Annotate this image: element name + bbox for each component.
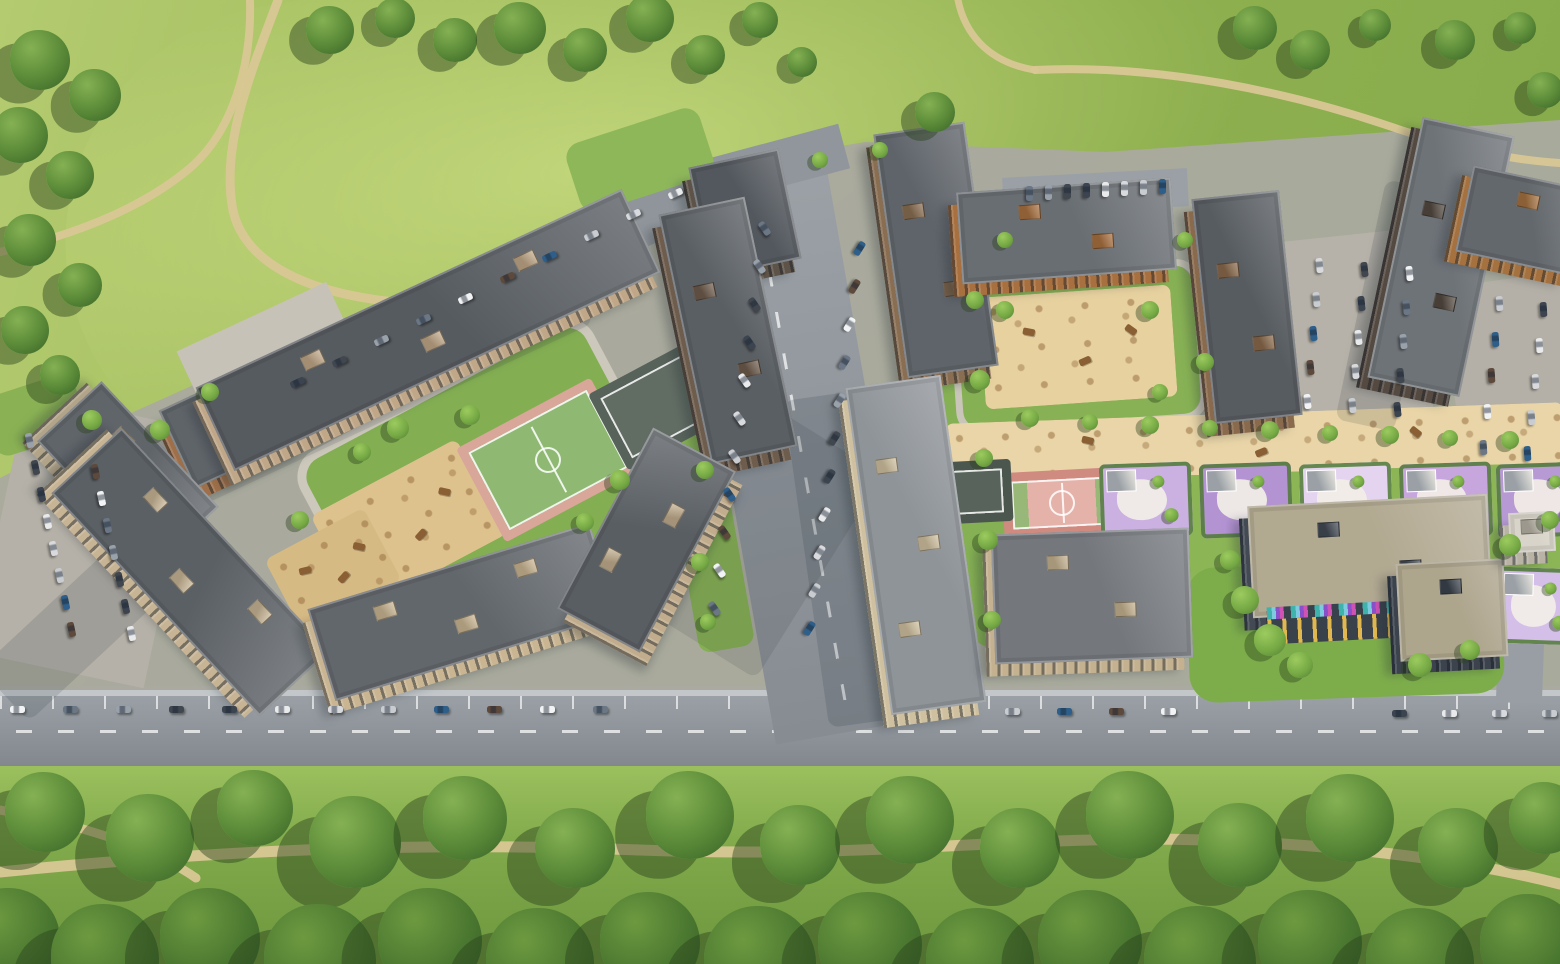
street-tree <box>201 383 219 401</box>
slope-tree <box>106 794 194 882</box>
plot-tree <box>1165 508 1179 522</box>
play-equipment <box>413 528 426 542</box>
car <box>116 706 131 713</box>
slope-tree <box>646 771 734 859</box>
slope-tree <box>217 770 293 846</box>
car <box>487 706 502 713</box>
rooftop-structure <box>598 546 622 572</box>
car <box>10 706 25 713</box>
slope-tree <box>760 805 840 885</box>
rooftop-structure <box>902 202 926 220</box>
street-tree <box>1231 586 1259 614</box>
street-tree <box>1254 624 1286 656</box>
car <box>1399 334 1408 350</box>
rooftop-structure <box>453 613 478 634</box>
meadow-tree <box>46 151 94 199</box>
rooftop-structure <box>898 620 922 638</box>
car <box>1005 708 1020 715</box>
rooftop-structure <box>1432 293 1457 312</box>
meadow-tree <box>915 92 955 132</box>
meadow-tree <box>787 47 817 77</box>
play-equipment <box>437 487 450 496</box>
rooftop-structure <box>1520 519 1543 535</box>
meadow-tree <box>375 0 415 38</box>
rooftop-structure <box>661 502 685 528</box>
plot-pavilion <box>1406 469 1437 492</box>
meadow-tree <box>58 263 102 307</box>
street-tree <box>1460 640 1480 660</box>
street-tree <box>996 301 1014 319</box>
plot-pavilion <box>1206 469 1237 492</box>
meadow-tree <box>1233 6 1277 50</box>
rooftop-structure <box>299 348 325 371</box>
rooftop-structure <box>1439 578 1462 594</box>
meadow-tree <box>306 6 354 54</box>
car <box>1405 266 1414 282</box>
meadow-tree <box>69 69 121 121</box>
rooftop-structure <box>1114 601 1137 617</box>
street-tree <box>387 417 409 439</box>
meadow-tree <box>10 30 70 90</box>
street-tree <box>1152 384 1168 400</box>
rooftop-structure <box>512 249 538 272</box>
slope-tree <box>5 772 85 852</box>
street-tree <box>82 410 102 430</box>
car <box>1392 710 1407 717</box>
meadow-tree <box>494 2 546 54</box>
meadow-tree <box>1359 9 1391 41</box>
car <box>1312 292 1321 308</box>
slope-tree <box>1198 803 1282 887</box>
rooftop-structure <box>875 456 899 474</box>
street-tree <box>1442 430 1458 446</box>
car <box>1306 360 1315 376</box>
car <box>593 706 608 713</box>
rooftop-structure <box>917 534 941 552</box>
street-tree <box>1177 232 1193 248</box>
street-tree <box>1499 534 1521 556</box>
play-equipment <box>352 542 365 551</box>
car <box>1479 440 1487 455</box>
street-tree <box>353 443 371 461</box>
car <box>1303 394 1312 410</box>
rooftop-structure <box>1421 200 1446 219</box>
car <box>1393 402 1402 418</box>
meadow-tree <box>1504 12 1536 44</box>
street-tree <box>576 513 594 531</box>
slope-tree <box>1418 808 1498 888</box>
car <box>1396 368 1405 384</box>
building-roof <box>991 528 1193 665</box>
street-tree <box>696 461 714 479</box>
rooftop-structure <box>692 282 717 301</box>
car <box>1064 184 1071 199</box>
slope-tree <box>423 776 507 860</box>
slope-tree <box>980 808 1060 888</box>
rooftop-structure <box>1317 522 1340 538</box>
street-tree <box>700 614 716 630</box>
rooftop-structure <box>1017 203 1040 219</box>
street-tree <box>812 152 828 168</box>
court-surface <box>1011 476 1113 529</box>
car <box>1531 374 1539 389</box>
car <box>1360 262 1369 278</box>
street-tree <box>150 420 170 440</box>
meadow-tree <box>40 355 80 395</box>
rooftop-structure <box>420 330 446 353</box>
car <box>1045 185 1052 200</box>
car <box>1309 326 1318 342</box>
play-equipment <box>298 566 311 576</box>
street-tree <box>1322 425 1338 441</box>
car <box>1159 179 1166 194</box>
rooftop-structure <box>372 601 397 622</box>
meadow-tree <box>1290 30 1330 70</box>
slope-tree <box>1306 774 1394 862</box>
rooftop-structure <box>1252 334 1275 351</box>
street-tree <box>610 470 630 490</box>
meadow-tree <box>433 18 477 62</box>
plot-tree <box>1550 476 1560 488</box>
rooftop-structure <box>1216 262 1239 279</box>
car <box>1351 364 1360 380</box>
street-tree <box>997 232 1013 248</box>
street-tree <box>1196 353 1214 371</box>
meadow-tree <box>1527 72 1560 108</box>
meadow-tree <box>742 2 778 38</box>
rooftop-structure <box>1091 232 1114 248</box>
plot-tree <box>1544 582 1556 594</box>
rooftop-structure <box>246 599 272 625</box>
plot-tree <box>1453 476 1465 488</box>
plot-tree <box>1253 476 1265 488</box>
car <box>1483 404 1491 419</box>
street-tree <box>691 553 709 571</box>
building <box>1455 165 1560 276</box>
car <box>381 706 396 713</box>
car <box>434 706 449 713</box>
rooftop-structure <box>1047 555 1070 571</box>
aerial-residential-render <box>0 0 1560 964</box>
slope-tree <box>866 776 954 864</box>
plot-pavilion <box>1503 573 1534 596</box>
play-equipment <box>1022 327 1035 336</box>
car <box>1492 710 1507 717</box>
car <box>1102 182 1109 197</box>
car <box>1057 708 1072 715</box>
street-tree <box>983 611 1001 629</box>
plot-pavilion <box>1306 469 1337 492</box>
play-equipment <box>1078 356 1092 367</box>
car <box>1026 186 1033 201</box>
car <box>1542 710 1557 717</box>
street-tree <box>1261 421 1279 439</box>
plot-tree <box>1353 476 1365 488</box>
meadow-tree <box>685 35 725 75</box>
meadow-tree <box>1435 20 1475 60</box>
plot-tree <box>1153 476 1165 488</box>
street-tree <box>1541 511 1559 529</box>
car <box>540 706 555 713</box>
car <box>1083 183 1090 198</box>
car <box>1348 398 1357 414</box>
rooftop-structure <box>142 487 168 513</box>
street-tree <box>970 370 990 390</box>
car <box>1315 258 1324 274</box>
car <box>1354 330 1363 346</box>
plot-pavilion <box>1503 469 1534 492</box>
street-tree <box>978 530 998 550</box>
street-tree <box>975 449 993 467</box>
rooftop-structure <box>513 558 538 579</box>
play-equipment <box>1124 324 1138 337</box>
play-equipment <box>1081 436 1094 446</box>
car <box>1402 300 1411 316</box>
car <box>1357 296 1366 312</box>
street-tree <box>966 291 984 309</box>
car <box>1140 180 1147 195</box>
slope-tree <box>1086 771 1174 859</box>
street-tree <box>1408 653 1432 677</box>
car <box>1495 296 1503 311</box>
play-equipment <box>1408 425 1422 438</box>
court-center-circle <box>530 442 565 477</box>
car <box>1527 410 1535 425</box>
building <box>991 528 1193 665</box>
building <box>1396 558 1509 662</box>
play-equipment <box>1254 447 1268 458</box>
street-tree <box>460 405 480 425</box>
court-center-circle <box>1048 489 1075 516</box>
car <box>328 706 343 713</box>
car <box>1121 181 1128 196</box>
play-equipment <box>337 571 350 585</box>
street-tree <box>1082 414 1098 430</box>
plot-tree <box>1553 616 1560 630</box>
slope-tree <box>535 808 615 888</box>
street-tree <box>1287 652 1313 678</box>
car <box>169 706 184 713</box>
car <box>1487 368 1495 383</box>
street-tree <box>1501 431 1519 449</box>
street-tree <box>291 511 309 529</box>
street-tree <box>1021 409 1039 427</box>
meadow-tree <box>563 28 607 72</box>
street-tree <box>1381 426 1399 444</box>
car <box>275 706 290 713</box>
plot-pavilion <box>1106 469 1137 492</box>
slope-tree <box>309 796 401 888</box>
meadow-tree <box>1 306 49 354</box>
car <box>1523 446 1531 461</box>
street-tree <box>872 142 888 158</box>
meadow-tree <box>4 214 56 266</box>
car <box>1109 708 1124 715</box>
building-roof <box>1396 558 1509 662</box>
car <box>1161 708 1176 715</box>
street-tree <box>1141 416 1159 434</box>
street-tree <box>1202 420 1218 436</box>
car <box>63 706 78 713</box>
rooftop-structure <box>168 567 194 593</box>
car <box>222 706 237 713</box>
car <box>1535 338 1543 353</box>
street-tree <box>1220 550 1240 570</box>
car <box>1442 710 1457 717</box>
car <box>1491 332 1499 347</box>
rooftop-structure <box>1516 191 1541 210</box>
street-tree <box>1141 301 1159 319</box>
car <box>1539 302 1547 317</box>
